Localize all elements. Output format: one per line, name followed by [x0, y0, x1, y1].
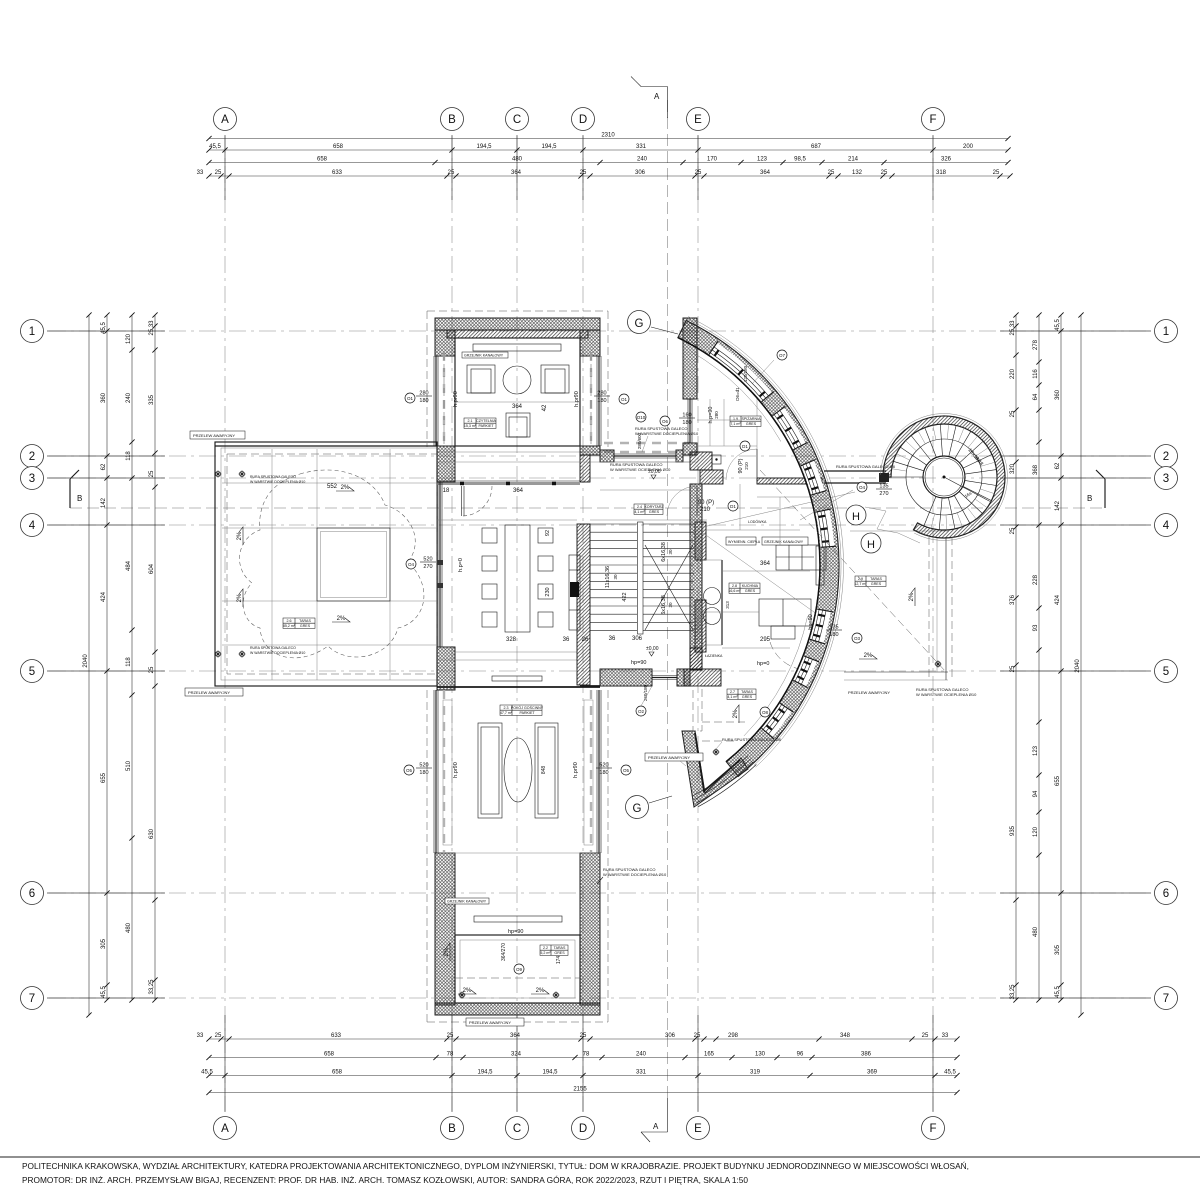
svg-text:GRES: GRES: [649, 510, 660, 514]
svg-text:33,25: 33,25: [1010, 984, 1016, 1000]
svg-text:33: 33: [942, 1033, 949, 1039]
svg-text:120: 120: [126, 333, 132, 344]
svg-text:O4: O4: [408, 562, 415, 567]
svg-text:180: 180: [419, 398, 428, 404]
svg-text:280: 280: [597, 391, 606, 397]
svg-text:360: 360: [101, 392, 107, 403]
svg-text:123: 123: [757, 157, 768, 163]
svg-text:O4: O4: [859, 485, 866, 490]
svg-text:D: D: [579, 1123, 587, 1135]
svg-text:935: 935: [1010, 825, 1016, 836]
svg-text:214: 214: [848, 157, 859, 163]
svg-text:93: 93: [1033, 624, 1039, 631]
svg-text:25: 25: [215, 170, 222, 176]
svg-text:687: 687: [811, 144, 822, 150]
svg-text:PRZELEW AWARYJNY: PRZELEW AWARYJNY: [469, 1020, 511, 1025]
svg-text:D1: D1: [742, 444, 748, 449]
svg-text:O8: O8: [762, 710, 769, 715]
svg-text:194,5: 194,5: [541, 144, 557, 150]
svg-text:F: F: [929, 1123, 936, 1135]
svg-text:228: 228: [1033, 574, 1039, 585]
svg-text:h.pr90: h.pr90: [453, 391, 459, 407]
svg-text:5: 5: [29, 666, 35, 678]
svg-text:5,2 m²: 5,2 m²: [540, 951, 551, 955]
svg-text:4: 4: [29, 520, 36, 532]
svg-text:TARAS: TARAS: [741, 690, 753, 694]
svg-text:O6: O6: [662, 419, 669, 424]
svg-text:520: 520: [419, 763, 428, 769]
svg-text:H: H: [867, 539, 875, 551]
svg-text:D6=d1: D6=d1: [735, 387, 740, 401]
svg-text:25,33: 25,33: [1010, 320, 1016, 336]
svg-text:POLITECHNIKA KRAKOWSKA, WYDZIA: POLITECHNIKA KRAKOWSKA, WYDZIAŁ ARCHITEK…: [22, 1160, 969, 1171]
svg-text:25: 25: [993, 170, 1000, 176]
svg-text:142: 142: [1055, 500, 1061, 511]
svg-text:CZYTELNIA: CZYTELNIA: [476, 419, 496, 423]
svg-text:KUCHNIA: KUCHNIA: [742, 584, 759, 588]
svg-text:W WARSTWIE DOCIEPLENIA Ø10: W WARSTWIE DOCIEPLENIA Ø10: [250, 480, 305, 484]
svg-text:328: 328: [506, 637, 517, 643]
svg-text:GRES: GRES: [742, 695, 753, 699]
svg-text:F: F: [929, 114, 936, 126]
svg-text:320: 320: [1010, 463, 1016, 474]
svg-text:TARAS: TARAS: [870, 577, 882, 581]
svg-text:386: 386: [861, 1052, 872, 1058]
svg-text:348: 348: [840, 1033, 851, 1039]
svg-text:424: 424: [101, 591, 107, 602]
svg-text:180: 180: [599, 770, 608, 776]
svg-text:36: 36: [563, 637, 570, 643]
svg-text:PRZELEW AWARYJNY: PRZELEW AWARYJNY: [193, 433, 235, 438]
svg-text:30: 30: [668, 549, 673, 555]
svg-text:135: 135: [879, 484, 888, 490]
svg-text:306: 306: [665, 1033, 676, 1039]
svg-text:142: 142: [101, 497, 107, 508]
svg-text:hp=90: hp=90: [631, 660, 646, 666]
svg-text:306: 306: [632, 636, 643, 642]
svg-text:160: 160: [682, 413, 691, 419]
svg-text:2%: 2%: [864, 653, 873, 659]
svg-text:180: 180: [419, 770, 428, 776]
svg-text:96: 96: [797, 1052, 804, 1058]
svg-text:D: D: [579, 114, 587, 126]
svg-text:2%: 2%: [536, 988, 545, 994]
svg-text:210: 210: [744, 462, 749, 470]
svg-text:2: 2: [1163, 451, 1169, 463]
svg-text:33,25: 33,25: [149, 979, 155, 995]
svg-text:630: 630: [149, 828, 155, 839]
svg-text:118: 118: [126, 451, 132, 461]
svg-text:376: 376: [1010, 594, 1016, 605]
svg-text:633: 633: [332, 170, 343, 176]
svg-text:484: 484: [126, 560, 132, 571]
svg-text:ŁAZIENKA: ŁAZIENKA: [705, 654, 723, 658]
svg-text:2.8: 2.8: [732, 584, 737, 588]
svg-text:25: 25: [448, 170, 455, 176]
svg-text:W WARSTWIE DOCIEPLENIA Ø10: W WARSTWIE DOCIEPLENIA Ø10: [603, 872, 667, 877]
svg-text:364: 364: [760, 561, 771, 567]
svg-text:7: 7: [1163, 993, 1169, 1005]
svg-text:2%: 2%: [909, 592, 915, 601]
svg-text:PRZELEW AWARYJNY: PRZELEW AWARYJNY: [188, 690, 230, 695]
svg-text:45,5: 45,5: [1055, 319, 1061, 331]
svg-text:6: 6: [1163, 888, 1169, 900]
svg-text:25: 25: [695, 170, 702, 176]
svg-text:POKÓJ GOŚCINNY: POKÓJ GOŚCINNY: [511, 705, 544, 710]
svg-text:298: 298: [728, 1033, 739, 1039]
svg-text:2.4: 2.4: [637, 505, 642, 509]
svg-text:hp=90: hp=90: [508, 929, 523, 935]
svg-text:240: 240: [636, 1052, 647, 1058]
svg-text:3: 3: [29, 473, 35, 485]
svg-text:6: 6: [29, 888, 35, 900]
svg-text:2%: 2%: [237, 531, 243, 540]
svg-text:604: 604: [149, 563, 155, 574]
svg-text:280: 280: [714, 411, 719, 419]
svg-text:D1: D1: [730, 504, 736, 509]
svg-text:240: 240: [126, 392, 132, 403]
svg-text:O9: O9: [516, 967, 523, 972]
svg-text:42: 42: [542, 404, 548, 411]
svg-text:36: 36: [609, 636, 616, 642]
svg-text:120: 120: [1033, 826, 1039, 837]
svg-text:1: 1: [1163, 326, 1169, 338]
svg-text:45,5: 45,5: [1055, 986, 1061, 998]
svg-text:364: 364: [513, 488, 524, 494]
svg-text:658: 658: [317, 157, 328, 163]
svg-text:TARAS: TARAS: [554, 946, 566, 950]
svg-text:7,1 m²: 7,1 m²: [730, 422, 741, 426]
svg-text:W WARSTWIE DOCIEPLENIA Ø10: W WARSTWIE DOCIEPLENIA Ø10: [635, 431, 699, 436]
svg-text:2.3: 2.3: [504, 706, 509, 710]
svg-text:25: 25: [149, 666, 155, 673]
svg-text:331: 331: [636, 1070, 647, 1076]
svg-text:45,5: 45,5: [944, 1070, 956, 1076]
svg-text:25: 25: [881, 170, 888, 176]
svg-text:B: B: [448, 1123, 456, 1135]
svg-text:O1: O1: [407, 396, 414, 401]
svg-text:116: 116: [1033, 369, 1039, 379]
svg-text:33: 33: [197, 170, 204, 176]
svg-text:7: 7: [29, 993, 35, 1005]
svg-text:324: 324: [511, 1052, 522, 1058]
svg-text:25: 25: [215, 1033, 222, 1039]
svg-text:45,5: 45,5: [101, 322, 107, 334]
svg-text:TARAS: TARAS: [299, 619, 311, 623]
svg-text:25: 25: [1010, 410, 1016, 417]
svg-text:25: 25: [828, 170, 835, 176]
svg-text:2%: 2%: [444, 947, 450, 956]
svg-text:C: C: [513, 114, 521, 126]
svg-text:KORYTARZ: KORYTARZ: [644, 505, 664, 509]
svg-text:510: 510: [126, 760, 132, 771]
svg-text:313: 313: [725, 601, 730, 609]
svg-text:B: B: [1087, 494, 1092, 503]
svg-text:A: A: [654, 92, 660, 101]
svg-text:230: 230: [545, 587, 551, 596]
svg-text:25: 25: [580, 170, 587, 176]
svg-text:369: 369: [867, 1070, 878, 1076]
svg-text:2.2: 2.2: [543, 946, 548, 950]
svg-text:280: 280: [419, 391, 428, 397]
svg-text:6x16,38: 6x16,38: [661, 595, 667, 615]
svg-text:47,7 m²: 47,7 m²: [500, 711, 513, 715]
svg-text:18: 18: [443, 488, 450, 494]
svg-text:520: 520: [423, 557, 432, 563]
svg-text:6x16,38: 6x16,38: [661, 542, 667, 562]
svg-text:319: 319: [750, 1070, 761, 1076]
svg-text:O5: O5: [623, 768, 630, 773]
svg-text:GRZEJNIK KANAŁOWY: GRZEJNIK KANAŁOWY: [447, 900, 487, 904]
svg-text:174: 174: [556, 956, 562, 965]
svg-text:RURA SPUSTOWA GALECO: RURA SPUSTOWA GALECO: [250, 646, 296, 650]
svg-text:364: 364: [512, 404, 523, 410]
svg-text:W WARSTWIE OCIEPLENIA Ø10: W WARSTWIE OCIEPLENIA Ø10: [916, 692, 977, 697]
svg-text:PROMOTOR: DR INŻ. ARCH. PRZEMY: PROMOTOR: DR INŻ. ARCH. PRZEMYSŁAW BIGAJ…: [22, 1175, 748, 1185]
svg-text:85,2 m²: 85,2 m²: [283, 624, 296, 628]
svg-text:2%: 2%: [237, 593, 243, 602]
svg-text:260/180: 260/180: [643, 684, 648, 701]
svg-text:G: G: [635, 318, 644, 330]
svg-text:78: 78: [447, 1052, 454, 1058]
svg-text:305: 305: [101, 938, 107, 949]
svg-text:G: G: [633, 803, 642, 815]
svg-text:30: 30: [613, 574, 618, 580]
svg-text:h.p=0: h.p=0: [458, 558, 464, 572]
svg-text:GRES: GRES: [871, 582, 882, 586]
svg-text:132: 132: [852, 170, 863, 176]
svg-text:2040: 2040: [1075, 659, 1081, 673]
svg-text:4: 4: [1163, 520, 1170, 532]
svg-text:480: 480: [1033, 926, 1039, 937]
svg-text:E: E: [694, 1123, 702, 1135]
svg-text:200: 200: [963, 144, 974, 150]
svg-text:GRES: GRES: [745, 589, 756, 593]
svg-text:RURA SPUSTOWA GALECO: RURA SPUSTOWA GALECO: [250, 475, 296, 479]
svg-text:480: 480: [126, 922, 132, 933]
svg-text:848: 848: [541, 766, 547, 775]
svg-text:45,5: 45,5: [209, 144, 221, 150]
svg-text:25: 25: [1010, 527, 1016, 534]
svg-text:1: 1: [29, 326, 35, 338]
svg-text:480: 480: [512, 157, 523, 163]
svg-text:E: E: [694, 114, 702, 126]
svg-text:364: 364: [510, 1033, 521, 1039]
svg-text:2%: 2%: [341, 485, 350, 491]
svg-text:194,5: 194,5: [476, 144, 492, 150]
svg-text:PRZELEW AWARYJNY: PRZELEW AWARYJNY: [648, 755, 690, 760]
svg-text:±0,00: ±0,00: [646, 646, 659, 652]
svg-text:180: 180: [597, 398, 606, 404]
svg-text:SPIŻARNIA: SPIŻARNIA: [742, 416, 762, 421]
svg-text:326: 326: [941, 157, 952, 163]
svg-text:658: 658: [333, 144, 344, 150]
svg-text:45,5: 45,5: [201, 1070, 213, 1076]
svg-text:B: B: [448, 114, 456, 126]
svg-text:331: 331: [636, 144, 647, 150]
svg-text:C: C: [513, 1123, 521, 1135]
svg-text:GRZEJNIK KANAŁOWY: GRZEJNIK KANAŁOWY: [464, 354, 504, 358]
svg-text:O10: O10: [637, 415, 646, 420]
svg-text:64: 64: [1033, 393, 1039, 400]
svg-text:O2: O2: [638, 709, 645, 714]
svg-text:422: 422: [622, 592, 628, 601]
svg-text:GRES: GRES: [300, 624, 311, 628]
svg-text:655: 655: [1055, 775, 1061, 786]
svg-text:25: 25: [149, 470, 155, 477]
svg-text:O5: O5: [406, 768, 413, 773]
svg-text:A: A: [221, 1123, 229, 1135]
svg-text:2155: 2155: [573, 1087, 587, 1093]
svg-text:11x16,36: 11x16,36: [605, 566, 611, 588]
svg-text:4,1 m²: 4,1 m²: [634, 510, 645, 514]
svg-text:165: 165: [704, 1052, 715, 1058]
svg-text:25: 25: [580, 1033, 587, 1039]
svg-text:h.pr90: h.pr90: [453, 762, 459, 778]
svg-text:2.7: 2.7: [730, 690, 735, 694]
svg-text:305: 305: [1055, 944, 1061, 955]
svg-text:92: 92: [545, 530, 551, 536]
svg-text:135: 135: [829, 625, 838, 631]
svg-text:552: 552: [327, 484, 338, 490]
svg-text:424: 424: [1055, 594, 1061, 605]
svg-text:hp=0: hp=0: [757, 661, 769, 667]
svg-text:655: 655: [101, 772, 107, 783]
svg-text:12,7 m²: 12,7 m²: [854, 582, 867, 586]
svg-text:98,5: 98,5: [794, 157, 806, 163]
svg-text:O7: O7: [779, 353, 786, 358]
svg-text:PARKIET: PARKIET: [478, 424, 494, 428]
svg-text:O3: O3: [854, 636, 861, 641]
svg-text:368: 368: [1033, 464, 1039, 475]
svg-text:360: 360: [1055, 389, 1061, 400]
svg-text:306: 306: [635, 170, 646, 176]
svg-text:2310: 2310: [601, 133, 615, 139]
svg-text:GRES: GRES: [746, 422, 757, 426]
svg-text:5: 5: [1163, 666, 1169, 678]
svg-text:364/270: 364/270: [501, 943, 507, 961]
svg-text:364: 364: [760, 170, 771, 176]
svg-text:A: A: [653, 1122, 659, 1131]
svg-text:118: 118: [126, 657, 132, 667]
svg-text:25: 25: [447, 1033, 454, 1039]
svg-text:h.pr90: h.pr90: [574, 391, 580, 407]
svg-text:25: 25: [1010, 665, 1016, 672]
svg-text:H: H: [852, 511, 860, 523]
svg-text:O1: O1: [621, 397, 628, 402]
svg-text:25: 25: [694, 1033, 701, 1039]
svg-text:335: 335: [149, 394, 155, 405]
svg-text:130: 130: [755, 1052, 766, 1058]
svg-text:62: 62: [1055, 462, 1061, 469]
svg-text:PRZELEW AWARYJNY: PRZELEW AWARYJNY: [848, 690, 890, 695]
svg-text:270: 270: [423, 564, 432, 570]
svg-text:25: 25: [922, 1033, 929, 1039]
svg-text:194,5: 194,5: [542, 1070, 558, 1076]
svg-text:B: B: [77, 494, 82, 503]
svg-text:PARKIET: PARKIET: [519, 711, 535, 715]
svg-text:278: 278: [1033, 339, 1039, 350]
svg-text:318: 318: [936, 170, 947, 176]
svg-text:2040: 2040: [83, 654, 89, 668]
svg-text:62: 62: [101, 463, 107, 470]
svg-text:4,1 m²: 4,1 m²: [727, 695, 738, 699]
svg-text:25,33: 25,33: [149, 320, 155, 336]
svg-text:123: 123: [1033, 745, 1039, 756]
svg-text:194,5: 194,5: [477, 1070, 493, 1076]
svg-text:2: 2: [29, 451, 35, 463]
svg-text:GRZEJNIK KANAŁOWY: GRZEJNIK KANAŁOWY: [764, 540, 804, 544]
svg-text:1.9: 1.9: [733, 417, 738, 421]
svg-text:3: 3: [1163, 473, 1169, 485]
svg-text:2.6: 2.6: [287, 619, 292, 623]
svg-text:16,6 m²: 16,6 m²: [728, 589, 741, 593]
svg-text:W WARSTWIE DOCIEPLENIA Ø10: W WARSTWIE DOCIEPLENIA Ø10: [250, 651, 305, 655]
svg-text:h.pr90: h.pr90: [573, 762, 579, 778]
svg-text:170: 170: [707, 157, 718, 163]
svg-text:658: 658: [324, 1052, 335, 1058]
svg-text:633: 633: [331, 1033, 342, 1039]
svg-text:W WARSTWIE OCIEPLENIA Ø10: W WARSTWIE OCIEPLENIA Ø10: [610, 467, 671, 472]
svg-text:120/180: 120/180: [743, 365, 748, 382]
svg-text:LODÓWKA: LODÓWKA: [748, 519, 767, 524]
svg-text:2%: 2%: [337, 616, 346, 622]
svg-text:A: A: [221, 114, 229, 126]
svg-text:94: 94: [1033, 790, 1039, 797]
svg-text:364: 364: [511, 170, 522, 176]
svg-text:GRES: GRES: [554, 951, 565, 955]
svg-text:180: 180: [829, 632, 838, 638]
svg-text:220: 220: [1010, 368, 1016, 379]
svg-text:WYMIENN. CIEPŁA: WYMIENN. CIEPŁA: [728, 540, 761, 544]
svg-text:270: 270: [879, 491, 888, 497]
svg-text:15,3 m²: 15,3 m²: [464, 424, 477, 428]
svg-text:295: 295: [760, 637, 771, 643]
svg-text:45,5: 45,5: [101, 986, 107, 998]
svg-text:2%: 2%: [733, 709, 739, 718]
svg-text:2.1: 2.1: [468, 419, 473, 423]
svg-text:520: 520: [599, 763, 608, 769]
svg-text:240: 240: [637, 157, 648, 163]
svg-text:658: 658: [332, 1070, 343, 1076]
svg-text:30: 30: [668, 602, 673, 608]
svg-text:78: 78: [583, 1052, 590, 1058]
svg-text:33: 33: [197, 1033, 204, 1039]
